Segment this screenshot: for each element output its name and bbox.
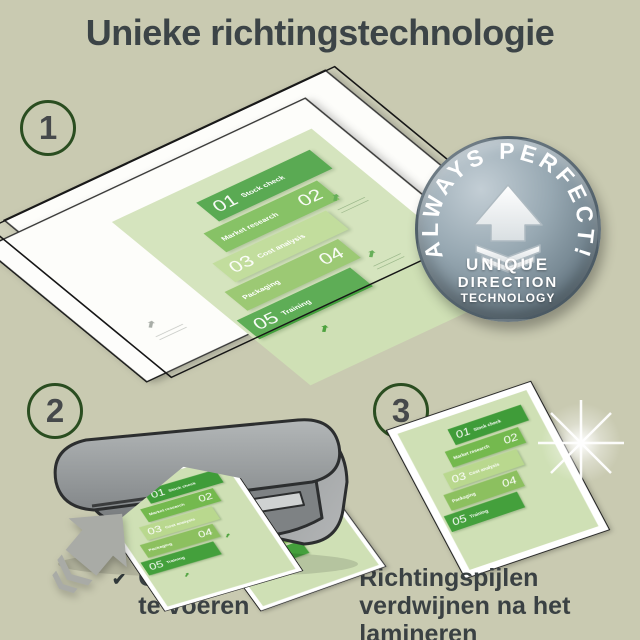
always-perfect-badge: ALWAYS PERFECT! UNIQUE DIRECTION TECHNOL… — [415, 136, 601, 322]
checklist-item-arrows-disappear: ✔ Richtingspijlen verdwijnen na het lami… — [333, 564, 633, 640]
badge-line-technology: TECHNOLOGY — [418, 291, 598, 306]
badge-line-direction: DIRECTION — [418, 274, 598, 291]
badge-line-unique: UNIQUE — [418, 256, 598, 274]
pouch-print-arrow-icon: ⬈ — [142, 318, 161, 330]
feed-direction-arrow-icon — [30, 502, 150, 612]
pouch-card: Launch 01Stock check02Market research03C… — [386, 381, 611, 580]
instruction-infographic: Unieke richtingstechnologie 1 ⬈ ⬈ ⬈ Laun… — [0, 0, 640, 640]
step-2-illustration: Launch 01Stock check02Market research03C… — [28, 372, 358, 602]
infographic-rows: 01Stock check02Market research03Cost ana… — [397, 390, 598, 570]
step-3-illustration: Launch 01Stock check02Market research03C… — [352, 382, 637, 582]
step-1-illustration: ⬈ ⬈ ⬈ Launch 01Stock check02Market resea… — [8, 42, 478, 372]
laminated-document: Launch 01Stock check02Market research03C… — [386, 381, 611, 580]
sample-document: Launch 01Stock check02Market research03C… — [397, 390, 598, 570]
badge-text-lines: UNIQUE DIRECTION TECHNOLOGY — [418, 256, 598, 306]
checklist-text: Richtingspijlen verdwijnen na het lamine… — [359, 564, 633, 640]
